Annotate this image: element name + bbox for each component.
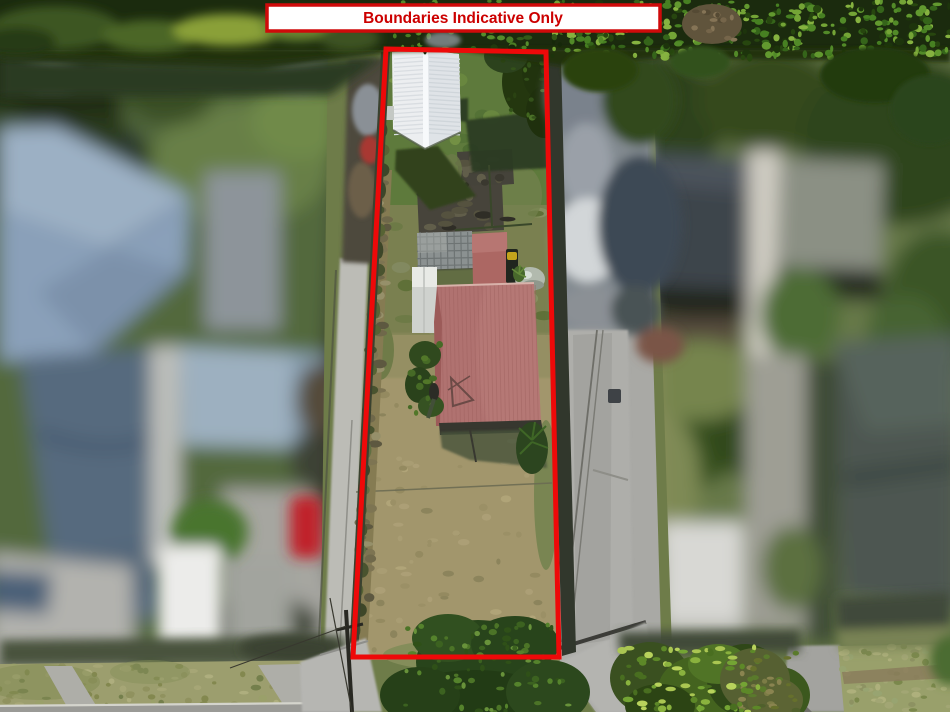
svg-text:Boundaries Indicative Only: Boundaries Indicative Only [363,10,563,27]
